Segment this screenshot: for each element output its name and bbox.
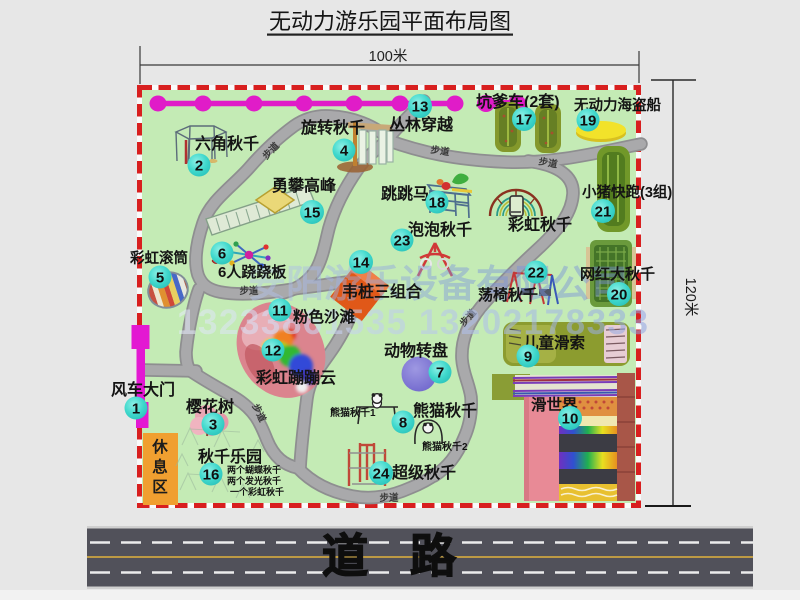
svg-text:120米: 120米 bbox=[682, 278, 699, 317]
svg-text:路: 路 bbox=[410, 530, 457, 582]
svg-text:两个蝴蝶秋千: 两个蝴蝶秋千 bbox=[227, 464, 281, 475]
svg-text:9: 9 bbox=[524, 349, 532, 366]
svg-text:12: 12 bbox=[265, 343, 282, 360]
svg-text:6: 6 bbox=[218, 246, 226, 263]
svg-text:熊猫秋千1: 熊猫秋千1 bbox=[330, 406, 376, 419]
svg-text:15: 15 bbox=[304, 205, 321, 222]
svg-text:勇攀高峰: 勇攀高峰 bbox=[272, 176, 337, 195]
svg-text:步道: 步道 bbox=[379, 492, 399, 504]
svg-text:风车大门: 风车大门 bbox=[111, 380, 175, 399]
svg-text:20: 20 bbox=[611, 287, 628, 304]
svg-text:无动力游乐园平面布局图: 无动力游乐园平面布局图 bbox=[269, 9, 511, 34]
svg-text:14: 14 bbox=[353, 255, 370, 272]
svg-text:休: 休 bbox=[151, 437, 168, 456]
svg-text:旋转秋千: 旋转秋千 bbox=[300, 118, 365, 137]
svg-text:彩虹滚筒: 彩虹滚筒 bbox=[129, 249, 188, 267]
svg-text:区: 区 bbox=[152, 478, 168, 496]
svg-text:21: 21 bbox=[595, 204, 612, 221]
svg-text:小猪快跑(3组): 小猪快跑(3组) bbox=[582, 183, 672, 201]
svg-text:泡泡秋千: 泡泡秋千 bbox=[408, 220, 472, 239]
svg-text:彩虹蹦蹦云: 彩虹蹦蹦云 bbox=[255, 368, 336, 387]
svg-text:4: 4 bbox=[340, 143, 349, 160]
svg-text:息: 息 bbox=[152, 457, 168, 476]
svg-text:17: 17 bbox=[516, 112, 533, 129]
svg-text:坑爹车(2套): 坑爹车(2套) bbox=[476, 92, 560, 111]
svg-text:18: 18 bbox=[429, 195, 446, 212]
svg-text:荡椅秋千: 荡椅秋千 bbox=[478, 286, 538, 304]
svg-text:22: 22 bbox=[528, 265, 545, 282]
svg-text:11: 11 bbox=[272, 303, 288, 320]
svg-text:超级秋千: 超级秋千 bbox=[391, 463, 456, 482]
svg-text:8: 8 bbox=[399, 415, 407, 432]
svg-text:跳跳马: 跳跳马 bbox=[381, 184, 429, 203]
svg-text:粉色沙滩: 粉色沙滩 bbox=[293, 307, 356, 326]
svg-text:一个彩虹秋千: 一个彩虹秋千 bbox=[230, 486, 284, 497]
svg-text:24: 24 bbox=[373, 466, 390, 483]
svg-text:安阳游乐设备有限公司: 安阳游乐设备有限公司 bbox=[248, 264, 628, 306]
svg-text:10: 10 bbox=[562, 411, 579, 428]
svg-text:两个发光秋千: 两个发光秋千 bbox=[227, 475, 281, 486]
svg-text:熊猫秋千2: 熊猫秋千2 bbox=[422, 440, 468, 453]
svg-text:熊猫秋千: 熊猫秋千 bbox=[413, 401, 477, 420]
svg-text:网红大秋千: 网红大秋千 bbox=[580, 265, 655, 283]
svg-text:19: 19 bbox=[580, 113, 597, 130]
svg-text:1: 1 bbox=[132, 401, 140, 418]
svg-text:23: 23 bbox=[394, 233, 411, 250]
svg-text:13: 13 bbox=[412, 99, 429, 116]
svg-text:彩虹秋千: 彩虹秋千 bbox=[507, 215, 572, 234]
svg-text:动物转盘: 动物转盘 bbox=[384, 341, 448, 360]
svg-text:六角秋千: 六角秋千 bbox=[195, 134, 259, 153]
svg-text:2: 2 bbox=[195, 158, 203, 175]
svg-text:7: 7 bbox=[436, 365, 444, 382]
svg-text:道: 道 bbox=[322, 530, 368, 582]
svg-text:韦桩三组合: 韦桩三组合 bbox=[342, 282, 423, 301]
svg-text:6人跷跷板: 6人跷跷板 bbox=[218, 263, 287, 281]
svg-text:100米: 100米 bbox=[369, 48, 408, 65]
svg-text:5: 5 bbox=[156, 270, 164, 287]
svg-text:16: 16 bbox=[203, 467, 220, 484]
svg-text:3: 3 bbox=[209, 417, 217, 434]
